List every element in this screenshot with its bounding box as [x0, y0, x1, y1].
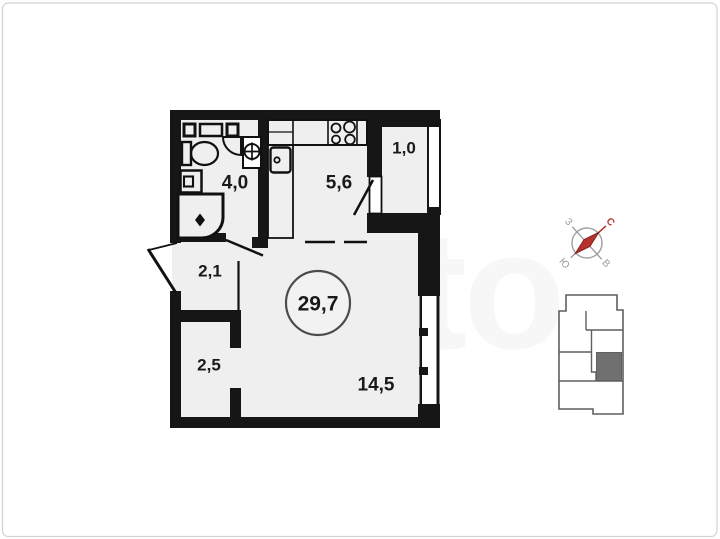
- balcony-glazing-window: [428, 120, 440, 214]
- floorplan-image: Avito: [0, 0, 720, 539]
- building-minimap: [559, 295, 623, 414]
- washbasin-icon: [243, 137, 261, 168]
- room-label-hallway: 2,1: [198, 262, 222, 281]
- room-label-bathroom: 4,0: [222, 173, 248, 194]
- room-label-closet: 2,5: [197, 356, 221, 375]
- shower-icon: [178, 194, 223, 238]
- apartment-position-marker: [597, 353, 622, 381]
- total-area-badge: 29,7: [286, 271, 350, 335]
- room-label-living-room: 14,5: [358, 375, 395, 396]
- living-room-window: [419, 296, 440, 404]
- compass-west-label: З: [562, 216, 574, 228]
- room-label-kitchen: 5,6: [326, 173, 352, 194]
- room-label-balcony: 1,0: [392, 139, 416, 158]
- floorplan-svg: Avito: [0, 0, 720, 539]
- total-area-value: 29,7: [298, 293, 339, 316]
